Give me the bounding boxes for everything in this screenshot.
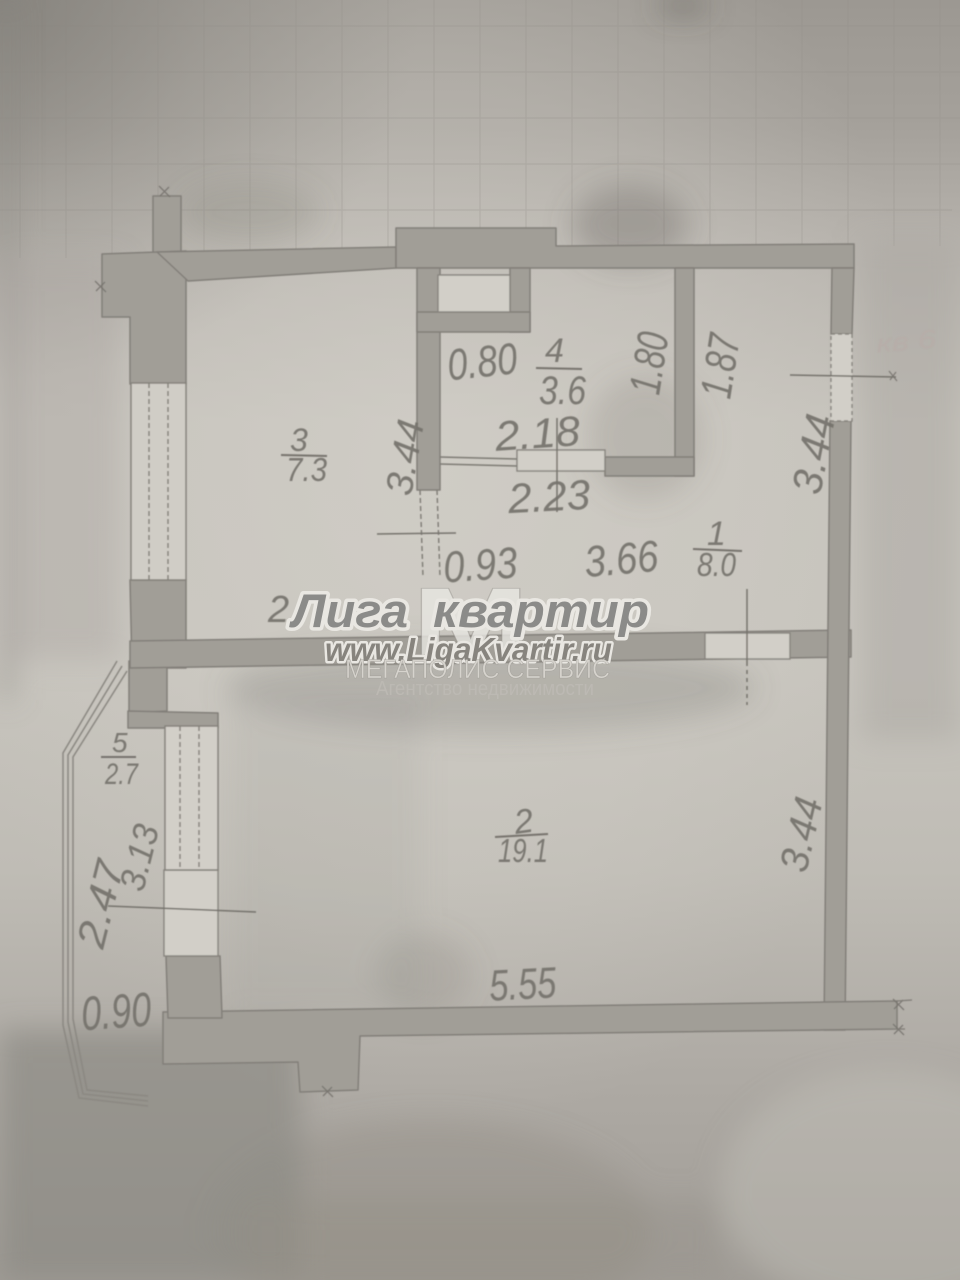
svg-text:2.7: 2.7 xyxy=(104,758,139,791)
svg-text:Лига: Лига xyxy=(289,584,408,637)
svg-text:1.87: 1.87 xyxy=(691,330,750,402)
svg-text:0.90: 0.90 xyxy=(79,984,153,1042)
svg-text:0.80: 0.80 xyxy=(445,334,520,390)
svg-text:квартир: квартир xyxy=(433,584,649,637)
svg-text:5: 5 xyxy=(112,727,128,758)
svg-text:Агентство недвижимости: Агентство недвижимости xyxy=(376,678,594,700)
svg-text:8.0: 8.0 xyxy=(697,546,737,583)
svg-text:кв 6: кв 6 xyxy=(875,323,938,358)
svg-text:19.1: 19.1 xyxy=(498,832,548,869)
svg-text:1.80: 1.80 xyxy=(620,328,678,397)
svg-text:2.23: 2.23 xyxy=(506,471,591,522)
svg-text:2.18: 2.18 xyxy=(492,407,582,460)
svg-text:3.66: 3.66 xyxy=(582,532,660,587)
svg-text:3.6: 3.6 xyxy=(539,369,587,413)
svg-text:5.55: 5.55 xyxy=(488,958,558,1010)
svg-text:4: 4 xyxy=(545,332,564,370)
svg-text:7.3: 7.3 xyxy=(286,451,328,488)
